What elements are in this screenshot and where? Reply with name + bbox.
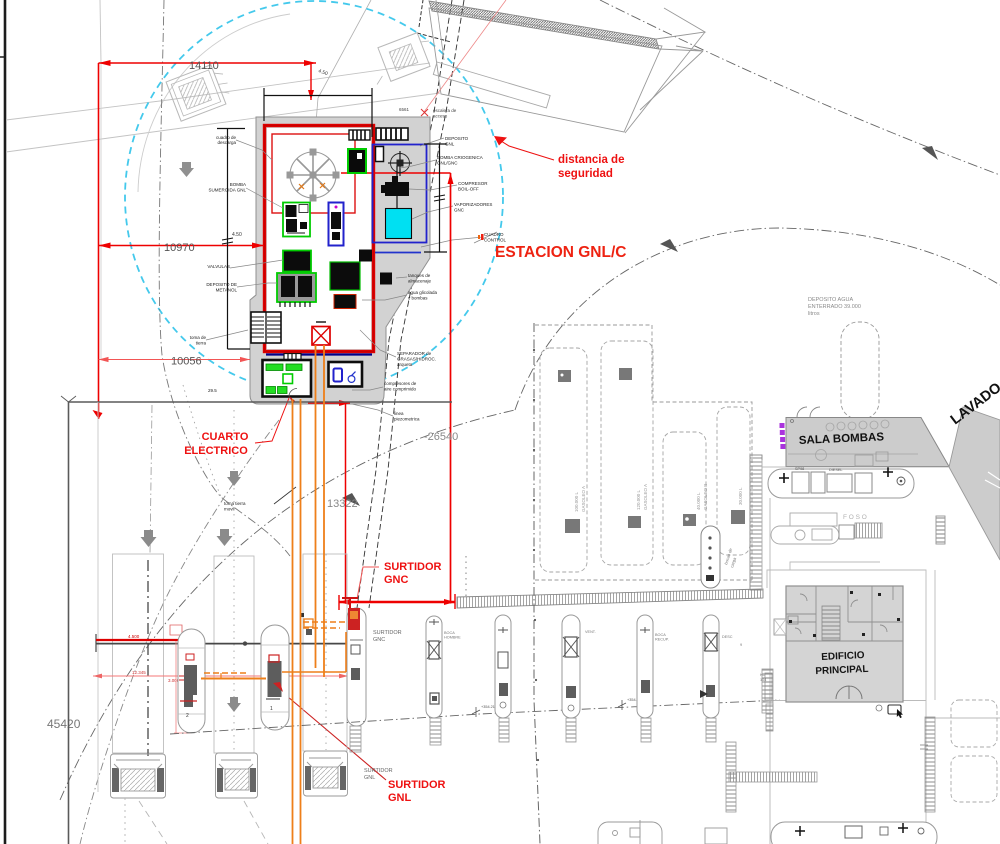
svg-text:GNC: GNC [373,637,385,643]
svg-text:PRINCIPAL: PRINCIPAL [815,664,869,677]
svg-text:DIESEL: DIESEL [829,468,843,472]
svg-text:9: 9 [740,643,742,647]
svg-text:RECUP.: RECUP. [655,638,669,642]
svg-text:agua glicolada: agua glicolada [408,290,438,295]
svg-text:toma de: toma de [190,335,207,340]
svg-text:linea: linea [394,411,404,416]
svg-text:BOCA: BOCA [444,631,455,635]
svg-text:almacenaje: almacenaje [408,279,432,284]
svg-text:BOIL-OFF: BOIL-OFF [458,187,479,192]
svg-text:14110: 14110 [189,60,219,72]
svg-text:VENT.: VENT. [585,630,596,634]
svg-text:VAPORIZADORES: VAPORIZADORES [454,202,492,207]
svg-text:6561: 6561 [399,107,410,112]
svg-text:10056: 10056 [171,356,202,368]
svg-text:toma tierra: toma tierra [224,501,246,506]
svg-text:COMPRESOR: COMPRESOR [458,181,488,186]
svg-text:SURTIDOR: SURTIDOR [364,768,393,774]
svg-text:movil: movil [224,507,235,512]
svg-text:100.000 L: 100.000 L [574,491,579,512]
svg-text:1: 1 [270,706,273,712]
svg-text:GASOLEO A: GASOLEO A [581,486,586,512]
svg-text:arqueta: arqueta [397,362,413,367]
svg-text:DEPOSITO AGUA: DEPOSITO AGUA [808,297,853,303]
svg-text:y bombas: y bombas [408,296,428,301]
svg-text:ESTACION GNL/C: ESTACION GNL/C [495,244,626,261]
svg-text:BOCA: BOCA [655,633,666,637]
svg-text:ELECTRICO: ELECTRICO [184,445,248,457]
svg-text:GNL: GNL [388,792,412,804]
svg-text:29.5: 29.5 [208,388,217,393]
svg-text:GNL: GNL [364,775,375,781]
svg-text:DESC: DESC [722,635,733,639]
svg-text:10970: 10970 [164,242,195,254]
svg-text:SEPARADOR de: SEPARADOR de [397,351,432,356]
svg-text:METANOL: METANOL [216,288,238,293]
svg-text:BOMBA CRIOGENICA: BOMBA CRIOGENICA [437,155,483,160]
svg-text:SURTIDOR: SURTIDOR [388,779,446,791]
svg-text:GNL/GNC: GNL/GNC [437,161,458,166]
svg-text:30.000 L: 30.000 L [738,487,743,505]
svg-text:escalera de: escalera de [433,108,457,113]
svg-text:12.345: 12.345 [132,670,146,675]
svg-text:BOMBA: BOMBA [230,182,246,187]
svg-text:seguridad: seguridad [558,168,613,180]
svg-text:GASOLEO B: GASOLEO B [703,484,708,510]
svg-text:40.000 L: 40.000 L [696,492,701,510]
svg-text:DEPOSITO: DEPOSITO [445,136,469,141]
svg-text:DEPOSITO DE: DEPOSITO DE [206,282,237,287]
svg-text:GASOLEO A: GASOLEO A [643,484,648,510]
svg-text:GNC: GNC [454,208,465,213]
svg-text:litros: litros [808,311,820,317]
svg-text:piezometrica: piezometrica [394,417,420,422]
svg-text:VALVULAS: VALVULAS [207,264,230,269]
svg-text:acceso: acceso [433,114,448,119]
svg-text:2: 2 [186,713,189,719]
svg-text:SURTIDOR: SURTIDOR [373,630,402,636]
svg-text:GNC: GNC [384,574,409,586]
svg-text:+354.21: +354.21 [481,705,495,709]
svg-text:F O S O: F O S O [843,514,867,521]
svg-text:HOMBRE: HOMBRE [444,636,461,640]
svg-text:EDIFICIO: EDIFICIO [821,650,865,663]
svg-text:45420: 45420 [47,717,81,731]
svg-text:4.500: 4.500 [128,634,140,639]
svg-text:SP98: SP98 [795,467,804,471]
svg-text:CUARTO: CUARTO [202,431,249,443]
svg-text:CONTROL: CONTROL [484,238,506,243]
svg-text:GRASAS/HIDROC.: GRASAS/HIDROC. [397,357,436,362]
svg-text:-26540: -26540 [424,431,458,443]
svg-text:13322: 13322 [327,498,358,510]
svg-text:120.000 L: 120.000 L [636,489,641,510]
svg-text:distancia de: distancia de [558,154,624,166]
svg-text:aire comprimido: aire comprimido [384,387,417,392]
svg-text:tierra: tierra [196,341,207,346]
svg-text:ENTERRADO 39.000: ENTERRADO 39.000 [808,304,861,310]
svg-text:compresores de: compresores de [384,381,417,386]
svg-text:4.50: 4.50 [232,232,242,238]
svg-text:tanques de: tanques de [408,273,431,278]
svg-text:CUADRO: CUADRO [484,232,504,237]
svg-text:SURTIDOR: SURTIDOR [384,561,442,573]
